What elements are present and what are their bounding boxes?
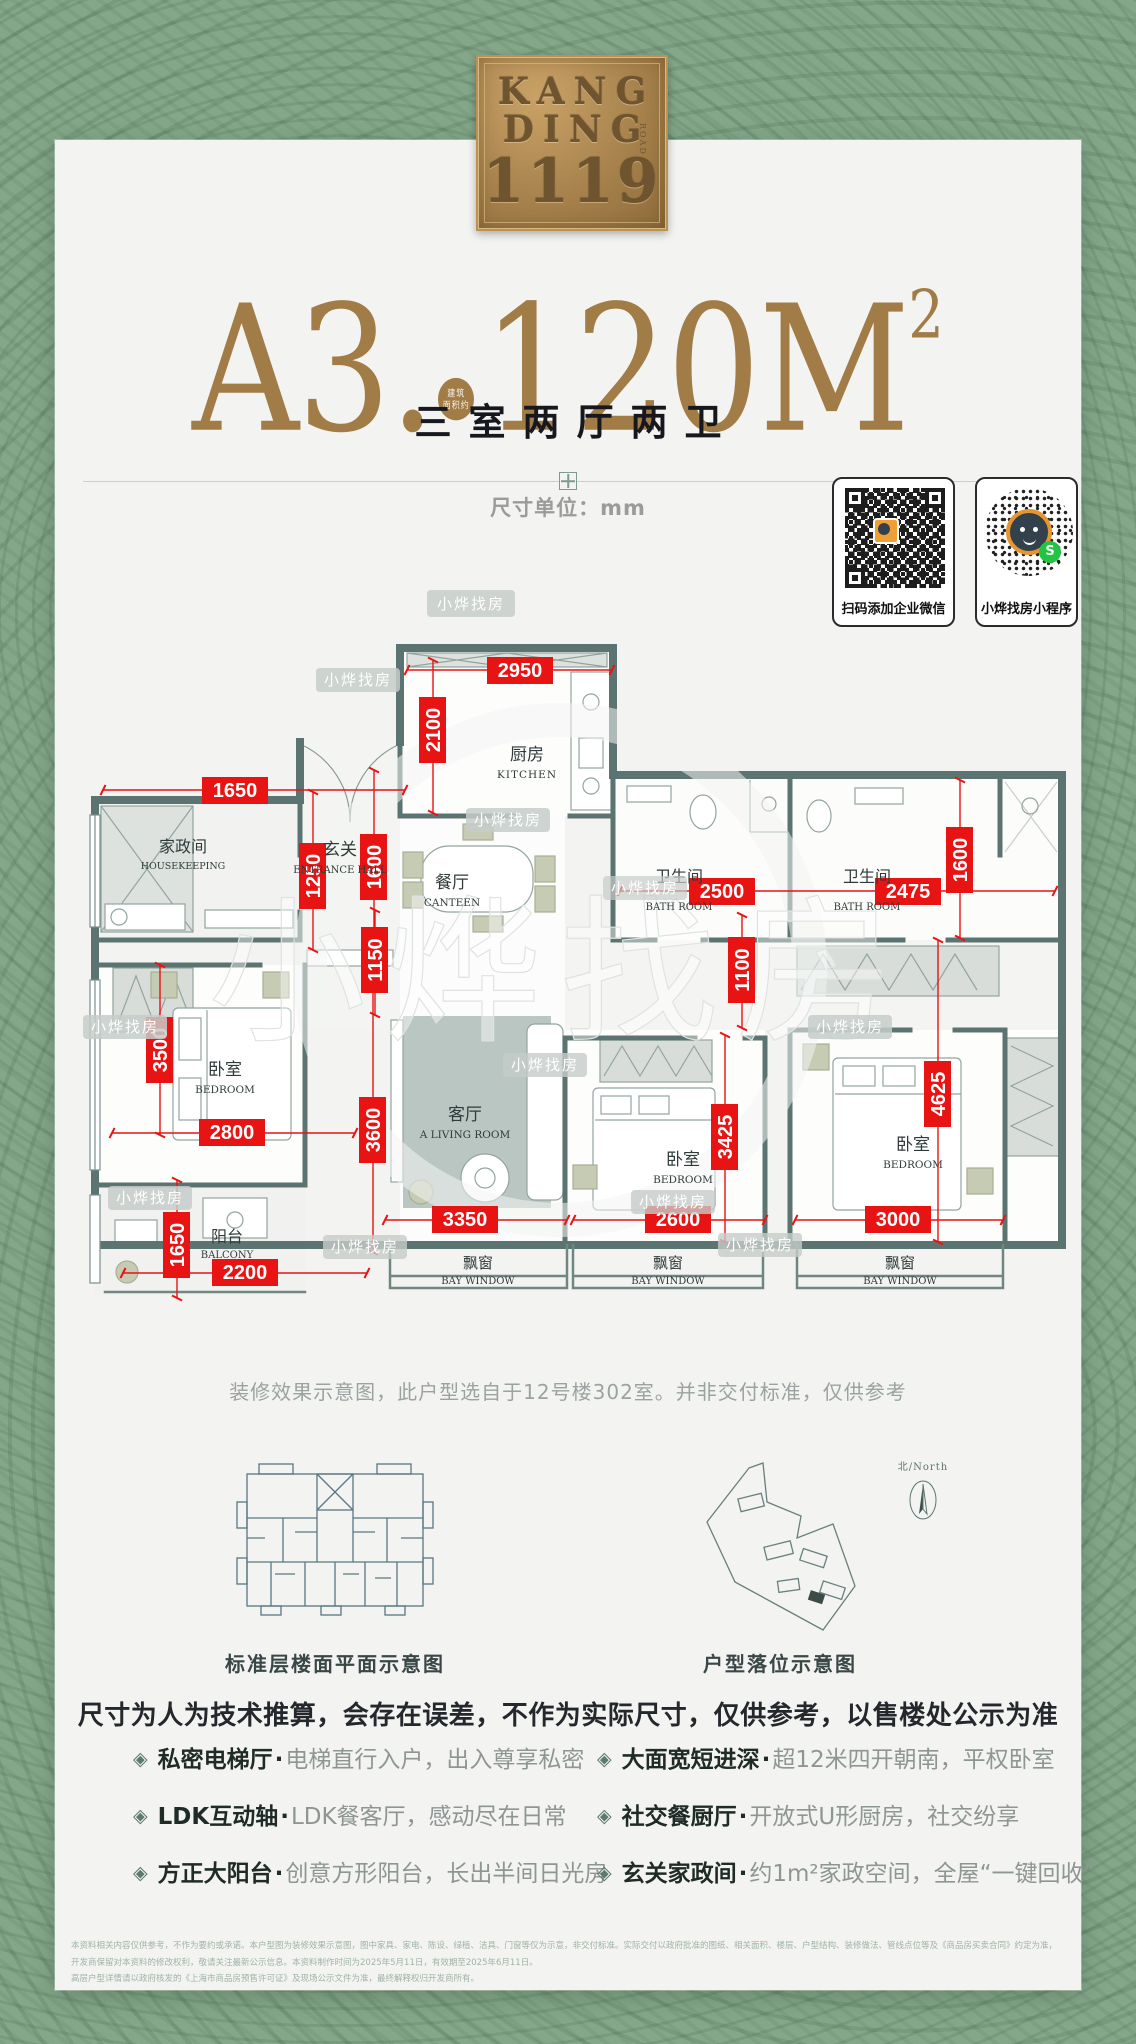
floor-plan: 小烨找房 (55, 620, 1081, 1350)
feature-square-balcony: ◈方正大阳台·创意方形阳台，长出半间日光房 (133, 1854, 607, 1888)
svg-text:卧室: 卧室 (208, 1060, 242, 1080)
site-position-label: 户型落位示意图 (580, 1648, 980, 1677)
svg-text:BEDROOM: BEDROOM (195, 1084, 255, 1096)
svg-text:2200: 2200 (223, 1262, 268, 1284)
svg-text:2800: 2800 (210, 1122, 255, 1144)
qr-finder-icon (845, 568, 865, 588)
qr-center-logo (873, 518, 899, 544)
svg-text:飘窗: 飘窗 (885, 1254, 915, 1272)
qr-finder-icon (845, 488, 865, 508)
north-label: 北/North (888, 1458, 958, 1473)
diamond-icon: ◈ (597, 1862, 612, 1884)
diamond-icon: ◈ (133, 1748, 148, 1770)
svg-text:ENTRANCE HALL: ENTRANCE HALL (293, 865, 387, 876)
svg-text:玄关: 玄关 (323, 840, 357, 860)
plan-caption: 装修效果示意图，此户型选自于12号楼302室。并非交付标准，仅供参考 (55, 1376, 1081, 1405)
svg-text:CANTEEN: CANTEEN (424, 897, 480, 909)
svg-text:小烨找房: 小烨找房 (611, 879, 679, 897)
svg-text:BATH ROOM: BATH ROOM (834, 902, 901, 913)
diamond-icon: ◈ (133, 1862, 148, 1884)
site-position-diagram (683, 1458, 873, 1642)
svg-text:3425: 3425 (715, 1115, 737, 1160)
svg-text:餐厅: 餐厅 (435, 873, 469, 893)
svg-text:小烨找房: 小烨找房 (324, 671, 392, 689)
unit-subtitle: 三室两厅两卫 (55, 392, 1081, 446)
logo-line-1119: 1119 (478, 149, 666, 215)
svg-text:小烨找房: 小烨找房 (331, 1238, 399, 1256)
svg-text:小烨找房: 小烨找房 (511, 1056, 579, 1074)
disclaimer-line-2: 高层户型详情请以政府核发的《上海市商品房预售许可证》及现场公示文件为准，最终解释… (71, 1971, 1065, 1988)
feature-housekeeping-room: ◈玄关家政间·约1m²家政空间，全屋“一键回收” (597, 1854, 1095, 1888)
svg-text:1650: 1650 (213, 780, 258, 802)
dimension-notice: 尺寸为人为技术推算，会存在误差，不作为实际尺寸，仅供参考，以售楼处公示为准 (55, 1695, 1081, 1732)
poster-card: KANG DING 1119 ROAD A3.建筑面积约120M2 三室两厅两卫… (55, 140, 1081, 1990)
svg-text:卫生间: 卫生间 (843, 867, 891, 886)
legal-disclaimer: 本资料相关内容仅供参考，不作为要约或承诺。本户型图为装修效果示意图，图中家具、家… (71, 1938, 1065, 1988)
svg-text:小烨找房: 小烨找房 (726, 1236, 794, 1254)
svg-text:BEDROOM: BEDROOM (653, 1174, 713, 1186)
disclaimer-line-1: 本资料相关内容仅供参考，不作为要约或承诺。本户型图为装修效果示意图，图中家具、家… (71, 1938, 1065, 1971)
svg-text:2950: 2950 (498, 660, 543, 682)
feature-social-kitchen: ◈社交餐厨厅·开放式U形厨房，社交纷享 (597, 1797, 1019, 1831)
svg-text:小烨找房: 小烨找房 (116, 1189, 184, 1207)
feature-wide-frontage: ◈大面宽短进深·超12米四开朝南，平权卧室 (597, 1740, 1055, 1774)
logo-line-kang: KANG (478, 73, 666, 111)
svg-text:3600: 3600 (363, 1108, 385, 1153)
qr-finder-icon (925, 488, 945, 508)
qr-caption: 扫码添加企业微信 (834, 598, 953, 617)
svg-text:2500: 2500 (700, 881, 745, 903)
svg-text:飘窗: 飘窗 (463, 1254, 493, 1272)
svg-text:1100: 1100 (732, 948, 754, 991)
diamond-icon: ◈ (597, 1748, 612, 1770)
svg-text:阳台: 阳台 (211, 1227, 243, 1246)
svg-text:A LIVING ROOM: A LIVING ROOM (419, 1129, 511, 1141)
miniprogram-badge-icon: S (1039, 541, 1061, 563)
svg-text:3350: 3350 (443, 1209, 488, 1231)
svg-text:卧室: 卧室 (896, 1135, 930, 1155)
feature-private-elevator: ◈私密电梯厅·电梯直行入户，出入尊享私密 (133, 1740, 584, 1774)
svg-text:BAY WINDOW: BAY WINDOW (631, 1276, 705, 1287)
svg-text:卧室: 卧室 (666, 1150, 700, 1170)
svg-text:1650: 1650 (167, 1223, 189, 1268)
brand-logo: KANG DING 1119 ROAD (476, 55, 668, 231)
poster-background: KANG DING 1119 ROAD A3.建筑面积约120M2 三室两厅两卫… (0, 0, 1136, 2044)
logo-road-text: ROAD (638, 123, 647, 156)
svg-text:BAY WINDOW: BAY WINDOW (863, 1276, 937, 1287)
svg-text:家政间: 家政间 (159, 837, 207, 856)
svg-text:2475: 2475 (886, 881, 931, 903)
north-compass: 北/North (888, 1458, 958, 1529)
svg-text:BATH ROOM: BATH ROOM (646, 902, 713, 913)
svg-text:2100: 2100 (423, 708, 445, 753)
svg-text:小烨找房: 小烨找房 (91, 1018, 159, 1036)
wechat-qr-card: 扫码添加企业微信 (832, 477, 955, 627)
svg-text:1600: 1600 (950, 838, 972, 883)
svg-text:厨房: 厨房 (510, 745, 544, 765)
svg-text:小烨找房: 小烨找房 (816, 1018, 884, 1036)
diamond-icon: ◈ (133, 1805, 148, 1827)
area-superscript: 2 (908, 278, 944, 355)
svg-text:4625: 4625 (928, 1072, 950, 1117)
svg-text:小烨找房: 小烨找房 (639, 1193, 707, 1211)
watermark-pill: 小烨找房 (427, 590, 515, 617)
svg-text:3000: 3000 (876, 1209, 921, 1231)
diamond-icon: ◈ (597, 1805, 612, 1827)
svg-text:飘窗: 飘窗 (653, 1254, 683, 1272)
svg-text:BALCONY: BALCONY (201, 1250, 254, 1261)
svg-text:HOUSEKEEPING: HOUSEKEEPING (141, 861, 226, 872)
floor-plate-diagram (235, 1462, 435, 1631)
floor-plate-label: 标准层楼面平面示意图 (135, 1648, 535, 1677)
miniprogram-qr-card: S 小烨找房小程序 (975, 477, 1078, 627)
svg-text:BAY WINDOW: BAY WINDOW (441, 1276, 515, 1287)
svg-text:小烨找房: 小烨找房 (474, 811, 542, 829)
svg-text:1250: 1250 (303, 854, 325, 899)
svg-text:BEDROOM: BEDROOM (883, 1159, 943, 1171)
svg-text:1150: 1150 (365, 938, 387, 981)
miniprogram-caption: 小烨找房小程序 (977, 598, 1076, 617)
svg-text:KITCHEN: KITCHEN (497, 769, 557, 781)
feature-ldk-axis: ◈LDK互动轴·LDK餐客厅，感动尽在日常 (133, 1797, 567, 1831)
svg-text:客厅: 客厅 (448, 1105, 482, 1125)
window-grid-icon (559, 472, 577, 490)
